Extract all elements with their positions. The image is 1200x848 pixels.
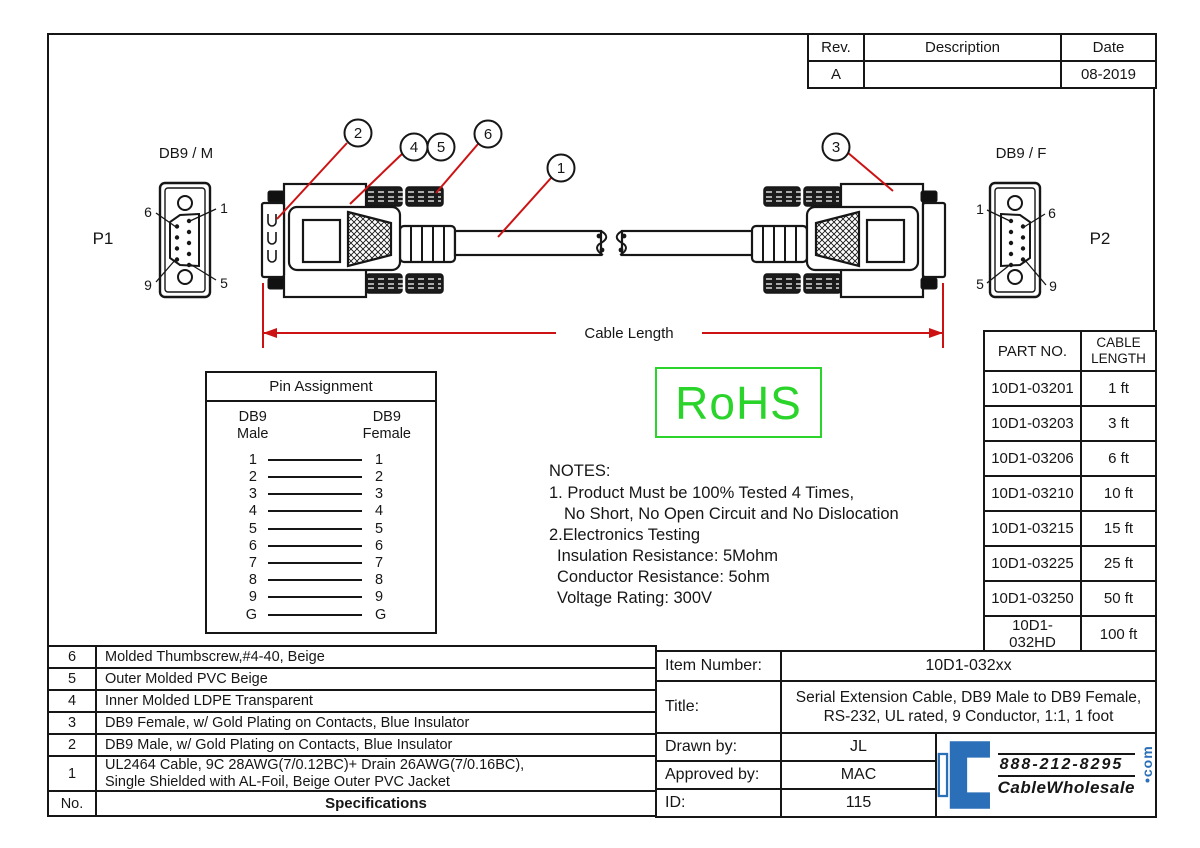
callout-4: 4: [410, 139, 418, 156]
spec-desc: UL2464 Cable, 9C 28AWG(7/0.12BC)+ Drain …: [96, 756, 656, 791]
spec-no: 5: [48, 668, 96, 690]
pin-row: 55: [207, 520, 435, 537]
spec-desc: Outer Molded PVC Beige: [96, 668, 656, 690]
pin-male: 9: [207, 589, 257, 605]
drawing-sheet: Rev. Description Date A 08-2019: [0, 0, 1200, 848]
pin-wire: [268, 510, 362, 512]
cablewholesale-c-icon: [937, 738, 994, 812]
part-length: 50 ft: [1081, 581, 1156, 616]
spec-desc: Molded Thumbscrew,#4-40, Beige: [96, 646, 656, 668]
part-no: 10D1-03250: [984, 581, 1081, 616]
logo-phone-number: 888-212-8295: [998, 753, 1135, 777]
title-block: Item Number: 10D1-032xx Title: Serial Ex…: [655, 650, 1157, 818]
part-row: 10D1-032HD100 ft: [984, 616, 1156, 652]
db9-male-pin-label-1: 1: [220, 200, 228, 216]
pin-male: 1: [207, 452, 257, 468]
spec-no: 1: [48, 756, 96, 791]
callout-1: 1: [557, 160, 565, 177]
item-number-row: Item Number: 10D1-032xx: [656, 651, 1156, 681]
pin-female: 7: [375, 555, 435, 571]
pin-row: 77: [207, 554, 435, 571]
pin-male: 4: [207, 503, 257, 519]
spec-footer-row: No.Specifications: [48, 791, 656, 816]
part-length: 100 ft: [1081, 616, 1156, 652]
pin-wire: [268, 528, 362, 530]
pin-female: G: [375, 607, 435, 623]
spec-row: 4Inner Molded LDPE Transparent: [48, 690, 656, 712]
spec-no: 4: [48, 690, 96, 712]
db9-female-face: [987, 183, 1046, 297]
specifications-label: Specifications: [96, 791, 656, 816]
db9-female-pin-label-1: 1: [976, 201, 984, 217]
pin-row: 22: [207, 468, 435, 485]
pin-wire: [268, 545, 362, 547]
pin-row: 11: [207, 451, 435, 468]
note-line-5: Conductor Resistance: 5ohm: [549, 567, 969, 588]
pin-male: 6: [207, 538, 257, 554]
pin-col-header-female: DB9 Female: [363, 409, 411, 443]
db9-female-pin-label-9: 9: [1049, 278, 1057, 294]
id-value: 115: [781, 789, 936, 817]
callout-2: 2: [354, 125, 362, 142]
part-row: 10D1-0321515 ft: [984, 511, 1156, 546]
cable-length-header: CABLE LENGTH: [1081, 331, 1156, 371]
part-no: 10D1-032HD: [984, 616, 1081, 652]
spec-row: 6Molded Thumbscrew,#4-40, Beige: [48, 646, 656, 668]
part-row: 10D1-0325050 ft: [984, 581, 1156, 616]
note-line-6: Voltage Rating: 300V: [549, 588, 969, 609]
pin-female: 8: [375, 572, 435, 588]
id-label: ID:: [656, 789, 781, 817]
part-no: 10D1-03210: [984, 476, 1081, 511]
pin-wire: [268, 579, 362, 581]
callout-balloons: [345, 120, 850, 182]
part-length: 6 ft: [1081, 441, 1156, 476]
pin-male: 3: [207, 486, 257, 502]
db9-female-pin-leaders: [987, 210, 1046, 285]
db9-male-title: DB9 / M: [159, 145, 213, 162]
male-connector-assembly: [262, 184, 455, 297]
pin-assignment-title: Pin Assignment: [207, 373, 435, 402]
pin-row: 88: [207, 572, 435, 589]
part-no: 10D1-03201: [984, 371, 1081, 406]
pin-female: 9: [375, 589, 435, 605]
db9-female-title: DB9 / F: [996, 145, 1047, 162]
db9-male-face: [156, 183, 216, 297]
item-number-value: 10D1-032xx: [781, 651, 1156, 681]
callout-5: 5: [437, 139, 445, 156]
spec-desc: DB9 Male, w/ Gold Plating on Contacts, B…: [96, 734, 656, 756]
female-connector-assembly: [752, 184, 945, 297]
part-row: 10D1-0322525 ft: [984, 546, 1156, 581]
pin-wire: [268, 596, 362, 598]
spec-row: 2DB9 Male, w/ Gold Plating on Contacts, …: [48, 734, 656, 756]
spec-row: 5Outer Molded PVC Beige: [48, 668, 656, 690]
part-number-table: PART NO. CABLE LENGTH 10D1-032011 ft 10D…: [983, 330, 1157, 653]
pin-female: 6: [375, 538, 435, 554]
pin-wire: [268, 493, 362, 495]
part-no: 10D1-03225: [984, 546, 1081, 581]
pin-male: G: [207, 607, 257, 623]
cable-length-label: Cable Length: [584, 325, 673, 342]
part-row: 10D1-032066 ft: [984, 441, 1156, 476]
part-row: 10D1-032011 ft: [984, 371, 1156, 406]
drawn-by-label: Drawn by:: [656, 733, 781, 761]
db9-female-pin-label-6: 6: [1048, 205, 1056, 221]
spec-no: 6: [48, 646, 96, 668]
pin-row: GG: [207, 606, 435, 623]
part-no-header: PART NO.: [984, 331, 1081, 371]
pin-male: 2: [207, 469, 257, 485]
logo-brand-name: CableWholesale: [998, 777, 1135, 798]
pin-col-header-male: DB9 Male: [237, 409, 268, 443]
logo-cell: 888-212-8295 CableWholesale •com: [936, 733, 1156, 817]
pin-female: 5: [375, 521, 435, 537]
part-no: 10D1-03206: [984, 441, 1081, 476]
db9-male-pins: [175, 219, 191, 267]
pin-wire: [268, 614, 362, 616]
note-line-4: Insulation Resistance: 5Mohm: [549, 546, 969, 567]
note-line-2: No Short, No Open Circuit and No Disloca…: [549, 504, 969, 525]
callout-6: 6: [484, 126, 492, 143]
item-number-label: Item Number:: [656, 651, 781, 681]
spec-row: 3DB9 Female, w/ Gold Plating on Contacts…: [48, 712, 656, 734]
pin-wire: [268, 562, 362, 564]
pin-male: 7: [207, 555, 257, 571]
logo-dot-com: •com: [1139, 767, 1155, 783]
title-line-1: Serial Extension Cable, DB9 Male to DB9 …: [786, 688, 1151, 707]
callout-3: 3: [832, 139, 840, 156]
db9-male-pin-label-9: 9: [144, 277, 152, 293]
part-length: 3 ft: [1081, 406, 1156, 441]
notes-block: NOTES: 1. Product Must be 100% Tested 4 …: [549, 461, 969, 609]
part-length: 15 ft: [1081, 511, 1156, 546]
pin-assignment-rows: 11 22 33 44 55 66 77 88 99 GG: [207, 446, 435, 623]
title-line-2: RS-232, UL rated, 9 Conductor, 1:1, 1 fo…: [786, 707, 1151, 726]
approved-by-value: MAC: [781, 761, 936, 789]
p2-label: P2: [1090, 229, 1111, 248]
pin-wire: [268, 459, 362, 461]
pin-female: 2: [375, 469, 435, 485]
specifications-table: 6Molded Thumbscrew,#4-40, Beige 5Outer M…: [47, 645, 657, 817]
cablewholesale-logo: 888-212-8295 CableWholesale •com: [937, 734, 1155, 816]
drawn-by-value: JL: [781, 733, 936, 761]
pin-female: 4: [375, 503, 435, 519]
notes-title: NOTES:: [549, 461, 969, 482]
pin-male: 5: [207, 521, 257, 537]
spec-no: 3: [48, 712, 96, 734]
part-row: 10D1-032033 ft: [984, 406, 1156, 441]
pin-wire: [268, 476, 362, 478]
note-line-1: 1. Product Must be 100% Tested 4 Times,: [549, 483, 969, 504]
pin-assignment-table: Pin Assignment DB9 Male DB9 Female 11 22…: [205, 371, 437, 634]
pin-male: 8: [207, 572, 257, 588]
spec-no-label: No.: [48, 791, 96, 816]
approved-by-label: Approved by:: [656, 761, 781, 789]
pin-female: 3: [375, 486, 435, 502]
pin-row: 44: [207, 503, 435, 520]
db9-male-pin-label-5: 5: [220, 275, 228, 291]
drawn-by-row: Drawn by: JL 888-212-8295 CableWholesale…: [656, 733, 1156, 761]
spec-desc: Inner Molded LDPE Transparent: [96, 690, 656, 712]
pin-female: 1: [375, 452, 435, 468]
db9-male-pin-label-6: 6: [144, 204, 152, 220]
pin-row: 33: [207, 486, 435, 503]
rohs-badge: RoHS: [655, 367, 822, 438]
part-length: 1 ft: [1081, 371, 1156, 406]
title-label: Title:: [656, 681, 781, 733]
pin-row: 99: [207, 589, 435, 606]
note-line-3: 2.Electronics Testing: [549, 525, 969, 546]
part-no: 10D1-03203: [984, 406, 1081, 441]
spec-desc: DB9 Female, w/ Gold Plating on Contacts,…: [96, 712, 656, 734]
spec-no: 2: [48, 734, 96, 756]
spec-row: 1UL2464 Cable, 9C 28AWG(7/0.12BC)+ Drain…: [48, 756, 656, 791]
part-length: 25 ft: [1081, 546, 1156, 581]
part-row: 10D1-0321010 ft: [984, 476, 1156, 511]
part-no: 10D1-03215: [984, 511, 1081, 546]
title-value: Serial Extension Cable, DB9 Male to DB9 …: [781, 681, 1156, 733]
part-length: 10 ft: [1081, 476, 1156, 511]
title-row: Title: Serial Extension Cable, DB9 Male …: [656, 681, 1156, 733]
p1-label: P1: [93, 229, 114, 248]
db9-female-pins: [1009, 219, 1025, 267]
db9-female-pin-label-5: 5: [976, 276, 984, 292]
pin-row: 66: [207, 537, 435, 554]
